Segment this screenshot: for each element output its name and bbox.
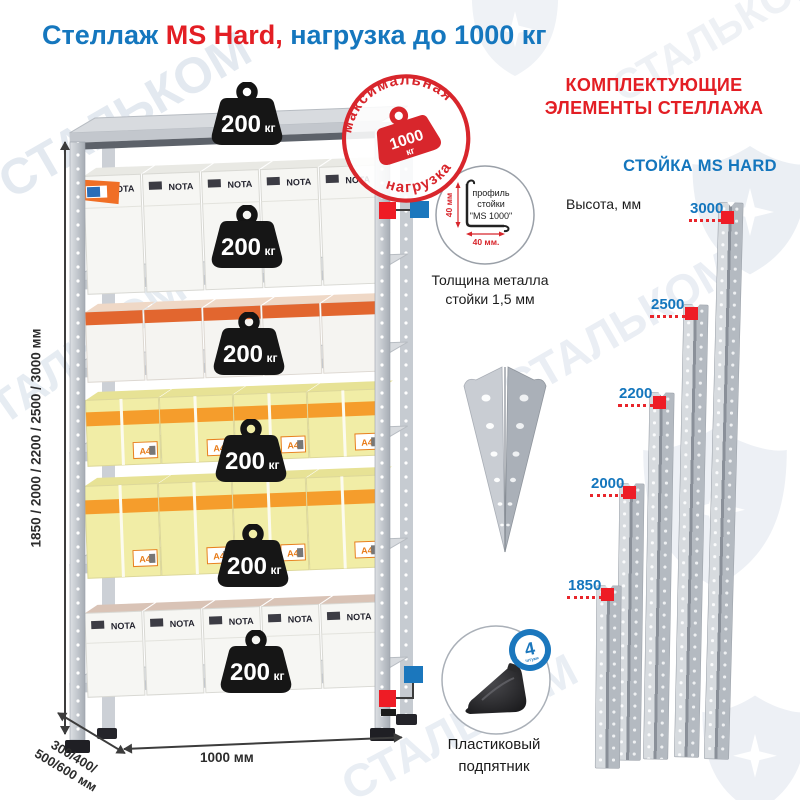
height-units-label: Высота, мм (566, 196, 641, 212)
thickness-line2: стойки 1,5 мм (400, 290, 580, 309)
post-height-label: 2500 (651, 296, 684, 313)
svg-text:кг: кг (264, 244, 275, 258)
post-marker (685, 307, 698, 320)
shelf-weight-icon: 200кг (203, 524, 303, 590)
connector-foot (381, 709, 396, 716)
title-load: нагрузка до 1000 кг (290, 20, 546, 50)
svg-text:кг: кг (266, 351, 277, 365)
post-height-label: 1850 (568, 577, 601, 594)
svg-text:40 мм.: 40 мм. (473, 237, 500, 247)
svg-text:200: 200 (221, 111, 261, 138)
svg-text:кг: кг (264, 121, 275, 135)
leader-dots (618, 404, 654, 407)
svg-text:профиль: профиль (472, 188, 510, 198)
post-marker (653, 396, 666, 409)
leader-dots (567, 596, 602, 599)
shelf-weight-icon: 200кг (197, 205, 297, 271)
title-model: MS Hard, (166, 20, 291, 50)
svg-text:NOTA: NOTA (170, 618, 196, 629)
svg-text:кг: кг (273, 669, 284, 683)
connector-line (412, 683, 414, 699)
leader-dots (590, 494, 624, 497)
svg-text:NOTA: NOTA (229, 616, 255, 627)
leader-dots (689, 219, 721, 222)
height-dimension-line (64, 142, 66, 734)
components-header-line2: ЭЛЕМЕНТЫ СТЕЛЛАЖА (516, 97, 792, 120)
shelf-weight-icon: 200кг (197, 82, 297, 148)
svg-text:кг: кг (268, 458, 279, 472)
components-header-line1: КОМПЛЕКТУЮЩИЕ (516, 74, 792, 97)
product-infographic: СТАЛЬКОМ СТАЛЬКОМ СТАЛЬКОМ СТАЛЬКОМ СТАЛ… (0, 0, 800, 800)
thickness-line1: Толщина металла (400, 271, 580, 290)
shelf-weight-icon: 200кг (199, 312, 299, 378)
components-subheader: СТОЙКА MS HARD (610, 157, 790, 176)
svg-text:NOTA: NOTA (346, 611, 372, 622)
leader-dots (650, 315, 686, 318)
svg-text:NOTA: NOTA (227, 179, 253, 190)
thickness-note: Толщина металла стойки 1,5 мм (400, 271, 580, 309)
post-marker (623, 486, 636, 499)
post-height-label: 3000 (690, 200, 723, 217)
post-1850 (595, 586, 621, 768)
foot-caption-line2: подпятник (404, 756, 584, 778)
post-2200 (644, 393, 674, 759)
svg-text:200: 200 (227, 553, 267, 580)
svg-text:200: 200 (223, 341, 263, 368)
post-height-label: 2200 (619, 385, 652, 402)
post-height-label: 2000 (591, 475, 624, 492)
post-marker (721, 211, 734, 224)
title-product: Стеллаж (42, 20, 166, 50)
components-header: КОМПЛЕКТУЮЩИЕ ЭЛЕМЕНТЫ СТЕЛЛАЖА (516, 74, 792, 119)
svg-text:200: 200 (225, 448, 265, 475)
shelf-weight-icon: 200кг (201, 419, 301, 485)
svg-text:200: 200 (230, 659, 270, 686)
foot-caption-line1: Пластиковый (404, 734, 584, 756)
svg-text:200: 200 (221, 234, 261, 261)
svg-text:NOTA: NOTA (111, 620, 137, 631)
page-title: Стеллаж MS Hard, нагрузка до 1000 кг (42, 20, 547, 51)
height-dimension-label: 1850 / 2000 / 2200 / 2500 / 3000 мм (29, 329, 44, 548)
svg-text:"MS 1000": "MS 1000" (470, 211, 512, 221)
connector-red-square (379, 690, 396, 707)
quantity-badge: 4 штуки в комплекте (504, 624, 556, 676)
svg-text:NOTA: NOTA (286, 177, 312, 188)
width-dimension-label: 1000 мм (200, 750, 254, 765)
connector-blue-square (404, 666, 423, 683)
svg-text:NOTA: NOTA (168, 181, 194, 192)
svg-text:стойки: стойки (477, 199, 505, 209)
post-3d-render (450, 360, 560, 560)
plastic-foot-caption: Пластиковый подпятник (404, 734, 584, 778)
shelf-weight-icon: 200кг (206, 630, 306, 696)
svg-text:кг: кг (270, 563, 281, 577)
rack-foot (396, 714, 417, 725)
svg-text:NOTA: NOTA (288, 614, 314, 625)
post-marker (601, 588, 614, 601)
